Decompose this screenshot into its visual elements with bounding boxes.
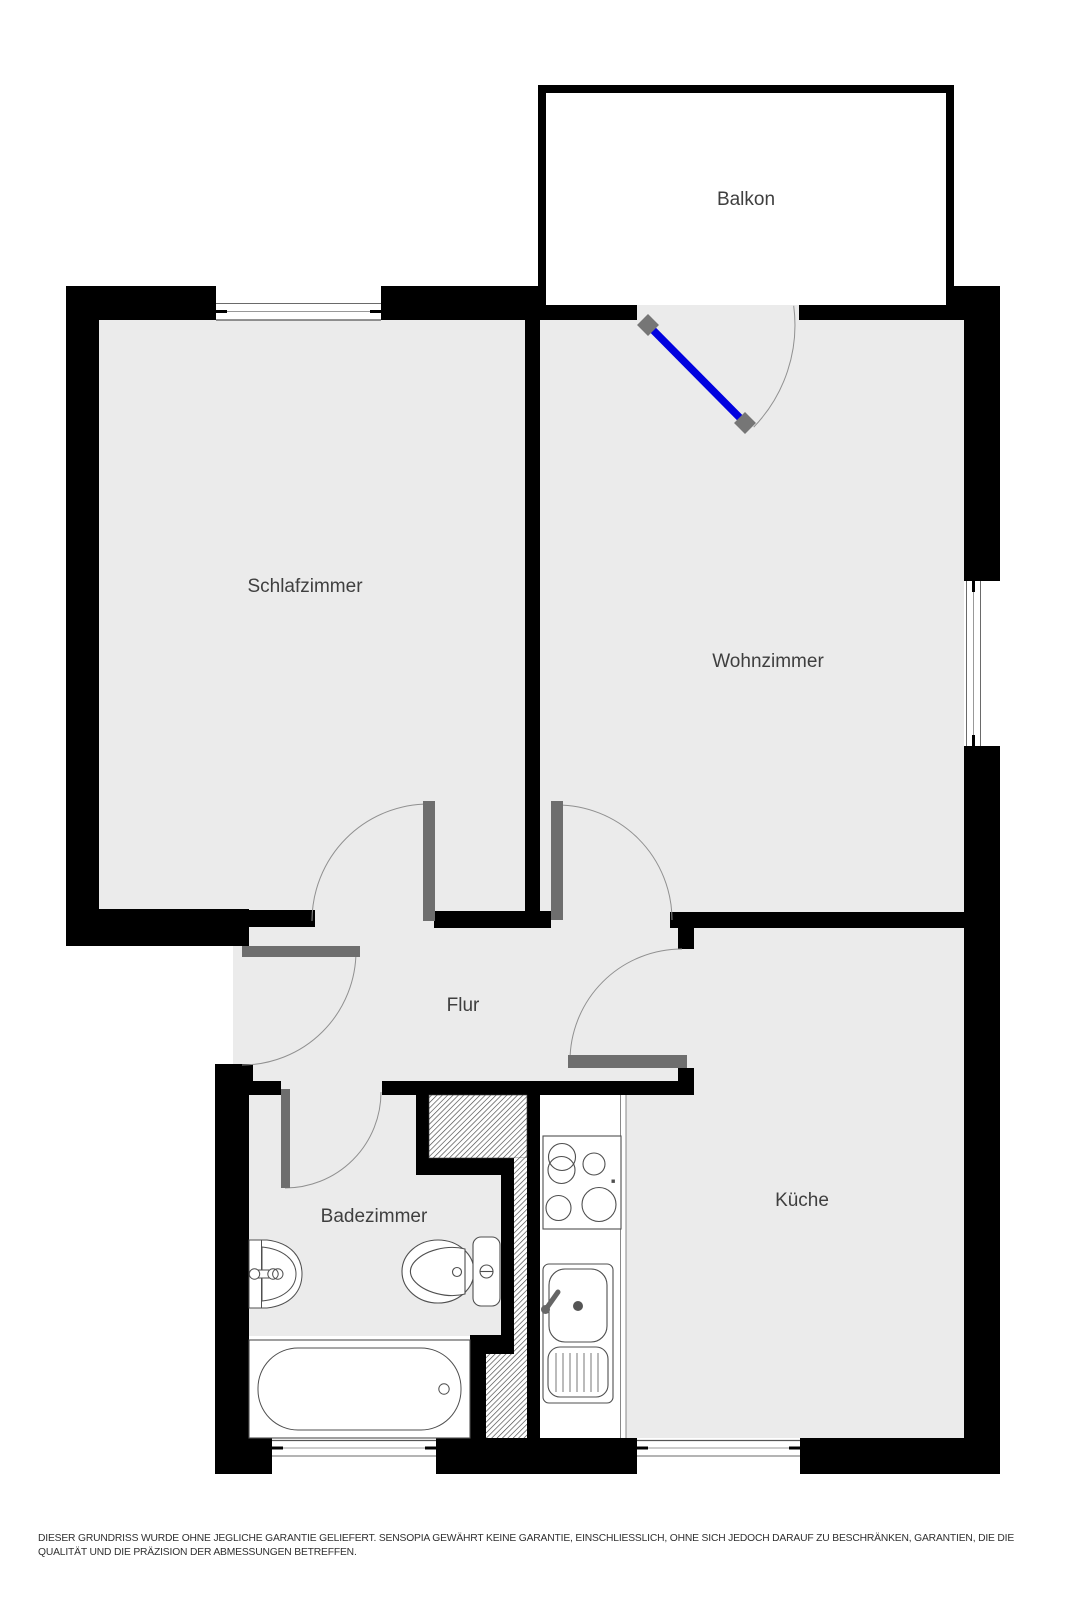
svg-text:Balkon: Balkon	[717, 189, 775, 210]
svg-text:DIESER GRUNDRISS WURDE OHNE JE: DIESER GRUNDRISS WURDE OHNE JEGLICHE GAR…	[38, 1532, 1014, 1544]
svg-text:QUALITÄT UND DIE PRÄZISION DER: QUALITÄT UND DIE PRÄZISION DER ABMESSUNG…	[38, 1546, 357, 1558]
svg-text:Badezimmer: Badezimmer	[321, 1206, 428, 1227]
svg-text:Schlafzimmer: Schlafzimmer	[247, 576, 363, 597]
svg-text:Wohnzimmer: Wohnzimmer	[712, 651, 824, 672]
svg-text:Flur: Flur	[447, 995, 480, 1016]
svg-text:Küche: Küche	[775, 1190, 829, 1211]
